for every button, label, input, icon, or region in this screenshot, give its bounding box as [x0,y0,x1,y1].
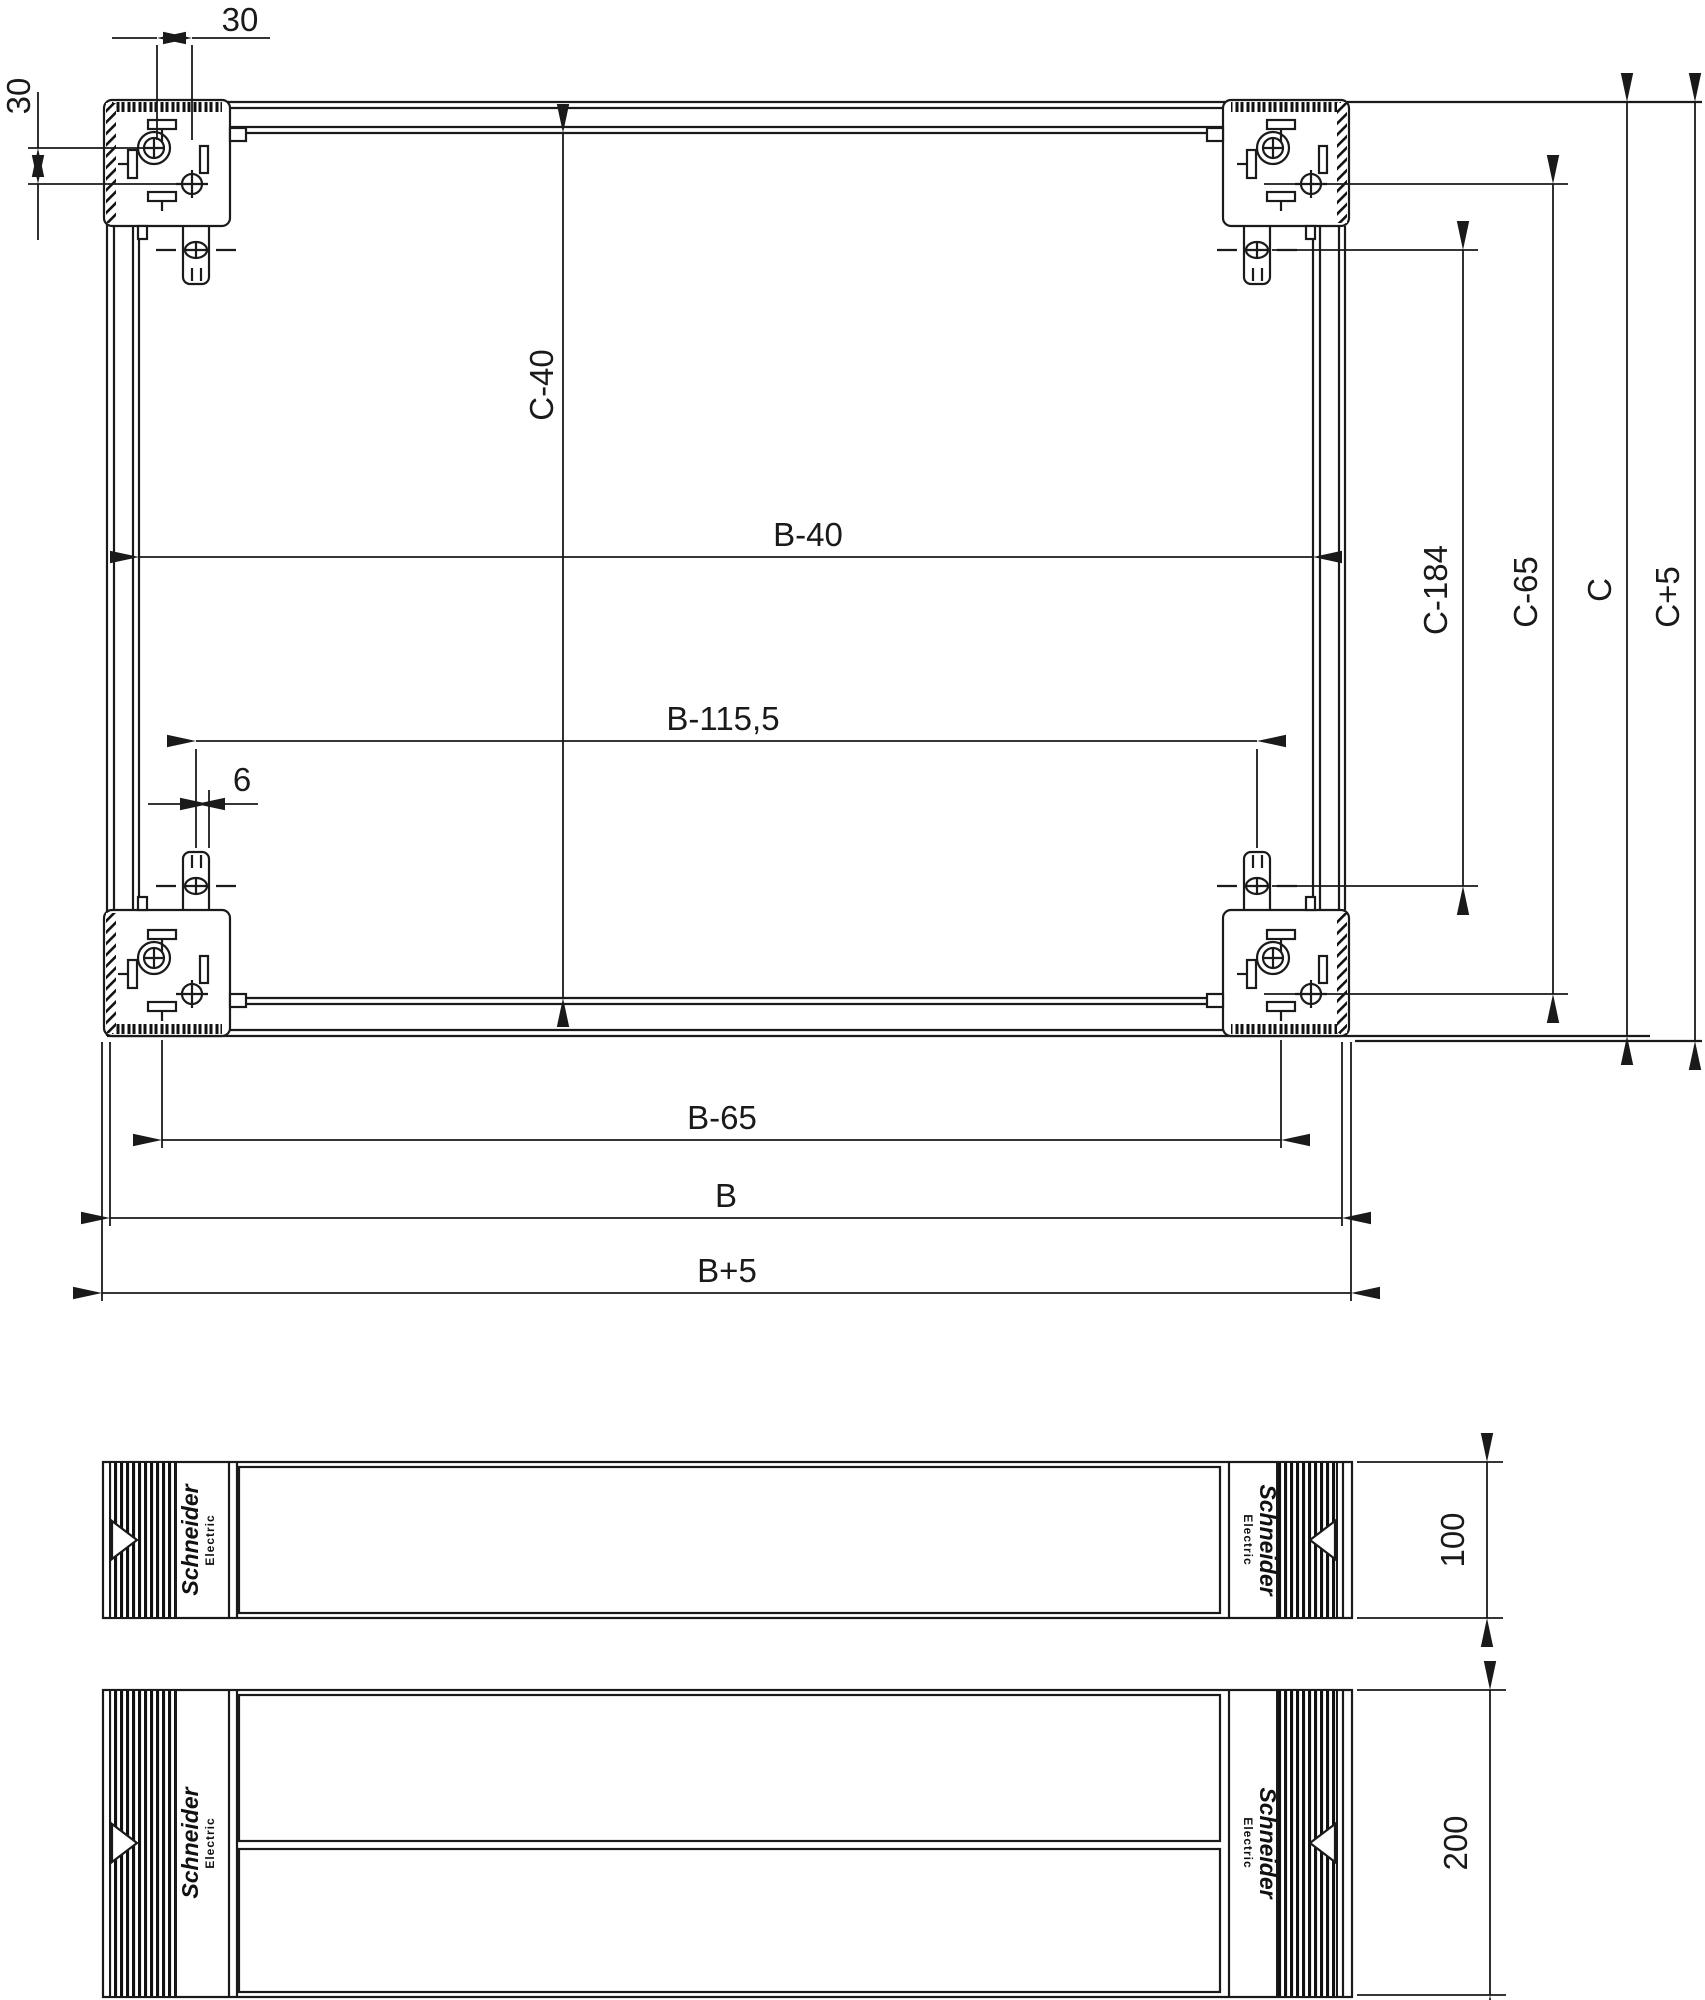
dim-b-minus-115-5: B-115,5 [196,700,1257,848]
dim-6: 6 [148,761,258,848]
dim-label-b-plus-5: B+5 [697,1252,757,1289]
dim-b-minus-65: B-65 [162,1040,1281,1148]
brand-line2: Electric [203,1514,217,1565]
dim-b-minus-40: B-40 [139,516,1313,557]
dim-100: 100 [1357,1462,1503,1618]
brand-line1: Schneider [177,1483,203,1595]
dim-label-30-top: 30 [222,1,259,38]
corner-bracket-top-right [1207,100,1349,284]
dim-label-c-minus-40: C-40 [523,349,560,421]
dim-c-minus-40: C-40 [523,133,563,998]
dim-label-30-left: 30 [0,78,37,115]
dim-label-100: 100 [1434,1512,1471,1567]
dim-label-6: 6 [233,761,251,798]
brand-line1: Schneider [1255,1484,1281,1596]
corner-bracket-top-left [104,100,246,284]
dim-label-c-plus-5: C+5 [1649,566,1686,627]
brand-line1: Schneider [1255,1787,1281,1899]
dim-b-plus-5: B+5 [102,1042,1351,1301]
dim-label-b-minus-40: B-40 [773,516,843,553]
brand-line2: Electric [203,1817,217,1868]
dim-label-c-minus-65: C-65 [1507,556,1544,628]
dim-label-200: 200 [1437,1815,1474,1870]
dim-label-b-minus-115-5: B-115,5 [666,700,779,737]
dim-200: 200 [1357,1690,1506,1995]
brand-line2: Electric [1241,1817,1255,1868]
dim-label-c-minus-184: C-184 [1417,545,1454,635]
brand-line1: Schneider [177,1786,203,1898]
dim-c: C [1581,102,1627,1036]
dim-c-plus-5: C+5 [1649,102,1695,1041]
dim-label-b: B [715,1177,737,1214]
front-view-plinth-100: Schneider Electric Schneider Electric 10… [103,1462,1503,1618]
brand-line2: Electric [1241,1514,1255,1565]
plan-view: 30 30 C-40 B-40 B-115,5 6 [0,1,1702,1301]
dim-label-c: C [1581,578,1618,602]
corner-bracket-bottom-left [104,852,246,1036]
dim-c-minus-184: C-184 [1272,250,1478,886]
plinth-dimension-drawing: 30 30 C-40 B-40 B-115,5 6 [0,0,1705,2000]
dim-c-minus-65: C-65 [1264,184,1568,994]
corner-bracket-bottom-right [1207,852,1349,1036]
technical-drawing-svg: 30 30 C-40 B-40 B-115,5 6 [0,0,1705,2000]
dim-label-b-minus-65: B-65 [687,1099,757,1136]
front-view-plinth-200: Schneider Electric Schneider Electric 20… [103,1690,1506,1997]
